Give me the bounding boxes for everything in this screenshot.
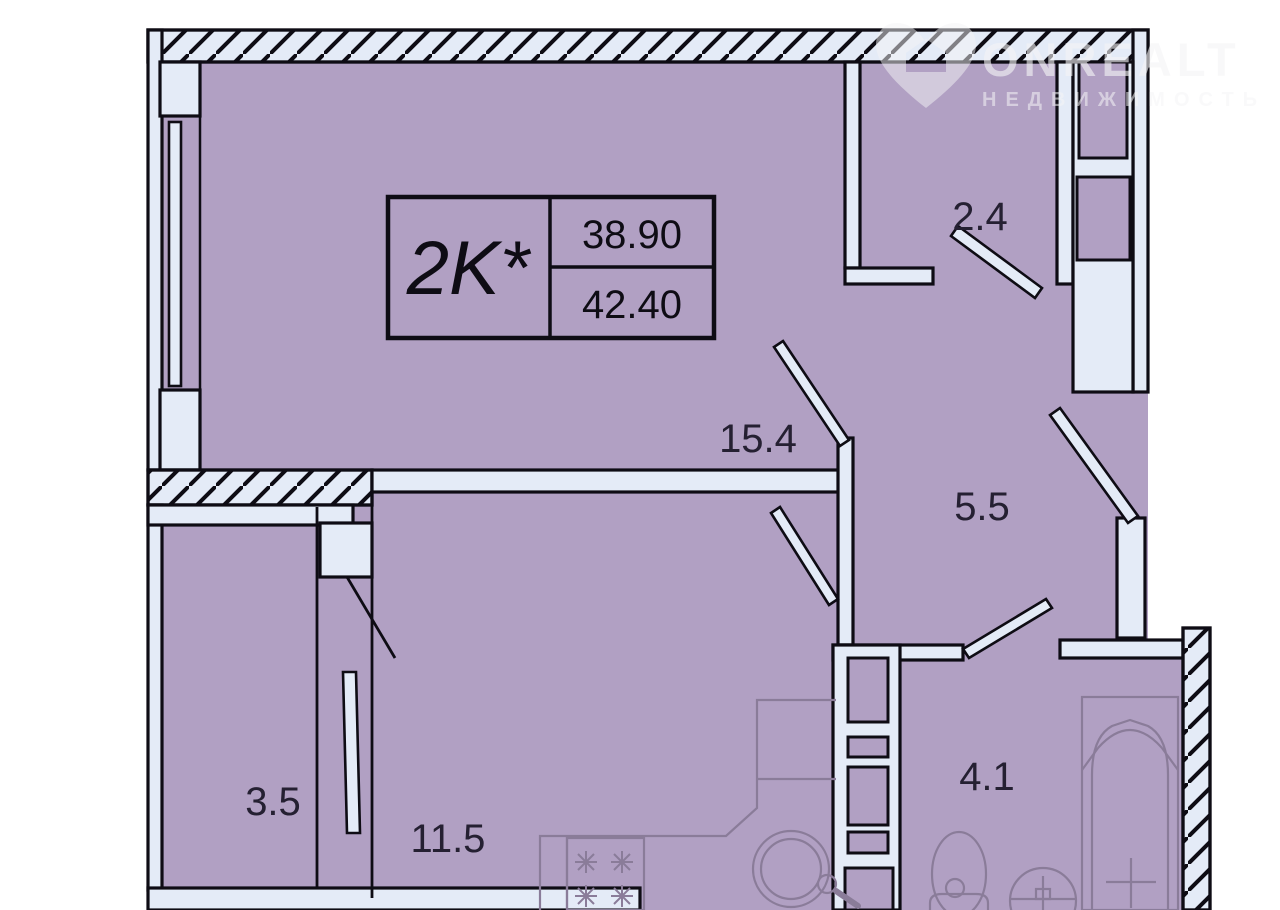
room-bathroom-floor — [900, 645, 1183, 910]
door-leaf-storage — [343, 672, 360, 833]
window-pane — [169, 122, 181, 386]
wall-bath-right-hatch — [1183, 628, 1210, 910]
duct-box-4 — [848, 737, 888, 757]
room-label-hallway: 5.5 — [954, 485, 1010, 529]
apartment-type-label: 2K* — [406, 226, 532, 311]
room-label-wardrobe: 2.4 — [952, 195, 1008, 239]
wall-entry-lower — [1117, 518, 1145, 638]
watermark-brand: ONREALT — [982, 33, 1241, 86]
wall-mid-left-hatch — [148, 470, 372, 505]
room-label-kitchen: 11.5 — [411, 817, 486, 861]
wall-storage-left — [148, 505, 162, 890]
duct-box-2 — [1077, 177, 1130, 260]
room-label-living: 15.4 — [719, 417, 797, 461]
wall-living-kitchen — [372, 470, 845, 492]
duct-box-6 — [848, 832, 888, 853]
floor-plan: 2.4 15.4 5.5 3.5 11.5 4.1 2K* 38.90 42.4… — [0, 0, 1280, 910]
wall-hall-kitchen — [838, 438, 853, 645]
room-label-storage: 3.5 — [245, 780, 301, 824]
duct-box-5 — [848, 767, 888, 825]
duct-box-3 — [848, 658, 888, 722]
wall-bath-top-right — [1060, 640, 1183, 658]
room-label-bathroom: 4.1 — [959, 755, 1015, 799]
living-area-value: 38.90 — [582, 213, 682, 257]
wall-wardrobe-stub — [845, 268, 933, 284]
wall-storage-stub — [320, 523, 372, 577]
wall-bay-bottom — [160, 390, 200, 470]
watermark-subtitle: НЕДВИЖИМОСТЬ — [982, 89, 1266, 111]
wall-wardrobe-left — [845, 62, 860, 268]
floor-plan-page: 2.4 15.4 5.5 3.5 11.5 4.1 2K* 38.90 42.4… — [0, 0, 1280, 910]
wall-bay-top — [160, 62, 200, 116]
total-area-value: 42.40 — [582, 283, 682, 327]
